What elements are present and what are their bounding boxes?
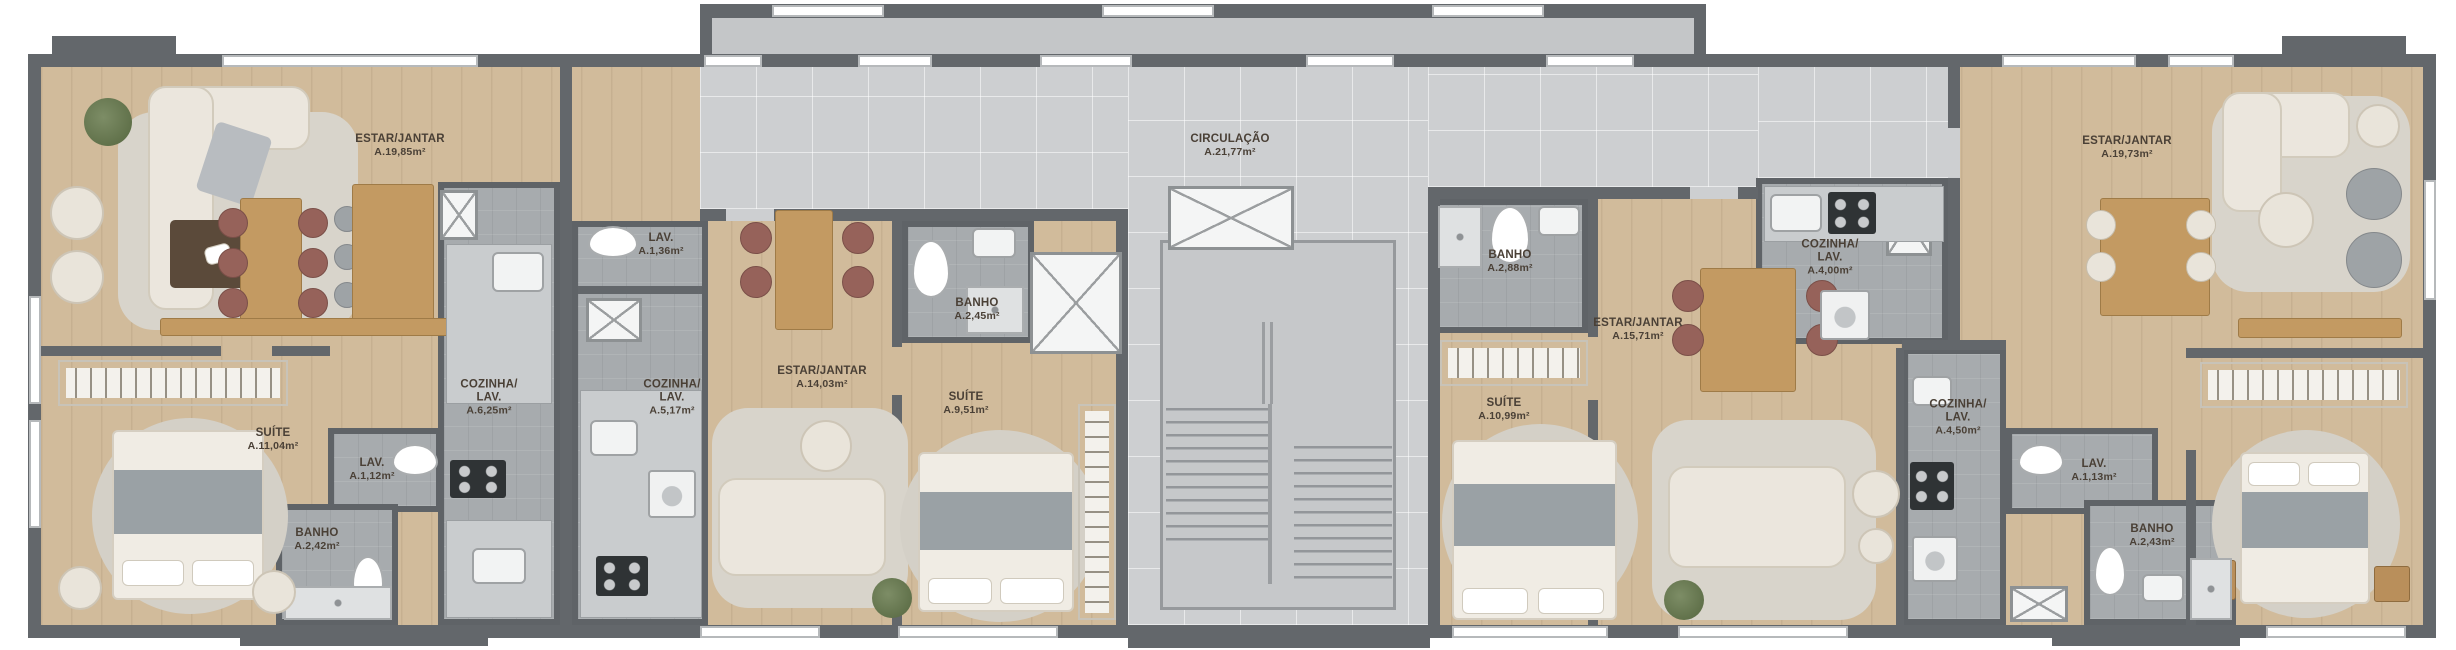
room-area: A.4,50m² (1926, 425, 1990, 438)
side-table (1858, 528, 1894, 564)
stove (596, 556, 648, 596)
room-area: A.2,88m² (1487, 262, 1532, 275)
door-opening (726, 209, 774, 221)
bathroom-sink (2142, 574, 2184, 602)
armchair (2346, 168, 2402, 220)
door-opening (1948, 128, 1960, 178)
room-label-circulacao: CIRCULAÇÃO A.21,77m² (1190, 133, 1269, 159)
window (29, 420, 41, 528)
room-area: A.2,42m² (294, 540, 339, 553)
coffee-table (800, 420, 852, 472)
room-area: A.10,99m² (1478, 410, 1529, 423)
room-label-apt2-suite: SUÍTE A.9,51m² (943, 391, 988, 417)
dining-chair (2086, 252, 2116, 282)
stove (1910, 462, 1954, 510)
corridor-wall (1738, 187, 1758, 199)
apt3-suite-wall (1588, 187, 1598, 337)
room-name: COZINHA/LAV. (1798, 239, 1862, 265)
washing-machine (648, 470, 696, 518)
room-label-apt2-banho: BANHO A.2,45m² (954, 297, 999, 323)
bed-pillow (2248, 462, 2300, 486)
stove (1828, 192, 1876, 234)
window (2424, 180, 2436, 300)
room-name: SUÍTE (1478, 397, 1529, 410)
circulation-floor-far-right (1758, 67, 1956, 178)
stair-treads (1294, 446, 1392, 580)
wall-stub (240, 632, 488, 646)
dining-chair (298, 248, 328, 278)
room-label-apt1-lav: LAV. A.1,12m² (349, 457, 394, 483)
duct-shaft (440, 190, 478, 240)
pouf (252, 570, 296, 614)
room-area: A.15,71m² (1593, 330, 1683, 343)
dining-chair (2186, 210, 2216, 240)
room-area: A.1,12m² (349, 470, 394, 483)
wall-stub (52, 36, 176, 56)
toilet (912, 240, 950, 298)
dining-chair (1672, 280, 1704, 312)
dining-chair (2186, 252, 2216, 282)
party-wall-apt1-apt2 (560, 67, 572, 625)
wardrobe (1440, 340, 1588, 386)
room-label-apt3-banho: BANHO A.2,88m² (1487, 249, 1532, 275)
window (1432, 5, 1544, 17)
interior-wall (1902, 340, 2006, 350)
room-label-apt4-cozinha-lav: COZINHA/LAV. A.4,50m² (1926, 399, 1990, 438)
window (1306, 55, 1394, 67)
window (1546, 55, 1634, 67)
bed-pillow (1462, 588, 1528, 614)
wardrobe (58, 360, 288, 406)
room-area: A.4,00m² (1798, 265, 1862, 278)
circulation-floor-left (700, 67, 1128, 209)
room-area: A.9,51m² (943, 404, 988, 417)
wall (1694, 4, 1706, 60)
window (1452, 626, 1608, 638)
kitchen-sink (1770, 194, 1822, 232)
room-name: CIRCULAÇÃO (1190, 133, 1269, 146)
room-name: SUÍTE (943, 391, 988, 404)
window (29, 296, 41, 404)
floor-plan: ESTAR/JANTAR A.19,85m² SUÍTE A.11,04m² L… (0, 0, 2456, 650)
window (704, 55, 762, 67)
door-opening (1690, 187, 1738, 199)
bed-blanket (2242, 492, 2368, 548)
washing-machine (1912, 536, 1958, 582)
elevator-shaft (1168, 186, 1294, 250)
toilet (2094, 546, 2126, 596)
interior-wall (892, 221, 902, 347)
room-area: A.14,03m² (777, 378, 867, 391)
room-name: ESTAR/JANTAR (777, 365, 867, 378)
shower (2190, 558, 2232, 620)
dining-chair (298, 288, 328, 318)
room-area: A.19,85m² (355, 146, 445, 159)
wall-stub (2282, 36, 2406, 56)
window (772, 5, 884, 17)
bathroom-sink (972, 228, 1016, 258)
room-name: BANHO (954, 297, 999, 310)
nightstand (2374, 566, 2410, 602)
coffee-table (2258, 192, 2314, 248)
dining-chair (218, 248, 248, 278)
room-area: A.1,13m² (2071, 471, 2116, 484)
room-name: BANHO (294, 527, 339, 540)
dining-chair (740, 222, 772, 254)
room-area: A.5,17m² (640, 405, 704, 418)
toilet (588, 226, 638, 258)
stove (450, 460, 506, 498)
sideboard (160, 318, 460, 336)
room-label-apt3-cozinha-lav: COZINHA/LAV. A.4,00m² (1798, 239, 1862, 278)
room-name: ESTAR/JANTAR (1593, 317, 1683, 330)
outer-wall-right (2423, 54, 2436, 638)
dining-chair (740, 266, 772, 298)
dining-chair (842, 222, 874, 254)
dining-chair (218, 288, 248, 318)
sofa (1668, 466, 1846, 568)
room-name: COZINHA/LAV. (457, 379, 521, 405)
room-label-apt2-lav: LAV. A.1,36m² (638, 232, 683, 258)
sofa (718, 478, 886, 576)
corridor-wall (1440, 187, 1690, 199)
wardrobe (1078, 404, 1116, 620)
toilet (392, 444, 438, 476)
stair-divider (1268, 404, 1272, 584)
room-name: SUÍTE (248, 427, 299, 440)
room-name: LAV. (2071, 458, 2116, 471)
room-label-apt4-banho: BANHO A.2,43m² (2129, 523, 2174, 549)
dining-chair (2086, 210, 2116, 240)
window (1040, 55, 1132, 67)
room-label-apt2-estar-jantar: ESTAR/JANTAR A.14,03m² (777, 365, 867, 391)
kitchen-island (352, 184, 434, 332)
washing-machine (1820, 290, 1870, 340)
room-label-apt4-lav: LAV. A.1,13m² (2071, 458, 2116, 484)
room-label-apt1-cozinha-lav: COZINHA/LAV. A.6,25m² (457, 379, 521, 418)
side-table (1852, 470, 1900, 518)
circulation-floor-right (1428, 67, 1758, 187)
wardrobe (2200, 362, 2408, 408)
stair-treads (1166, 408, 1268, 544)
window (2002, 55, 2136, 67)
corridor-wall (700, 209, 726, 221)
room-label-apt4-estar-jantar: ESTAR/JANTAR A.19,73m² (2082, 135, 2172, 161)
apt4-suite-wall (2186, 348, 2423, 358)
toilet (2018, 444, 2064, 476)
room-name: COZINHA/LAV. (640, 379, 704, 405)
room-label-apt3-estar-jantar: ESTAR/JANTAR A.15,71m² (1593, 317, 1683, 343)
plant (1664, 580, 1704, 620)
room-label-apt2-cozinha-lav: COZINHA/LAV. A.5,17m² (640, 379, 704, 418)
window (2168, 55, 2234, 67)
bed-blanket (114, 470, 262, 534)
bed-pillow (2308, 462, 2360, 486)
wall-stub (1128, 632, 1430, 648)
window (2266, 626, 2406, 638)
room-area: A.6,25m² (457, 405, 521, 418)
window (222, 55, 478, 67)
duct-shaft (2010, 586, 2068, 622)
armchair (50, 186, 104, 240)
room-label-apt1-banho: BANHO A.2,42m² (294, 527, 339, 553)
room-name: BANHO (1487, 249, 1532, 262)
shower (284, 586, 392, 620)
duct-shaft (586, 298, 642, 342)
bed-pillow (122, 560, 184, 586)
room-area: A.2,43m² (2129, 536, 2174, 549)
bed-blanket (920, 492, 1072, 550)
dining-chair (842, 266, 874, 298)
stair-rail (1262, 322, 1265, 404)
room-area: A.1,36m² (638, 245, 683, 258)
dining-table (240, 198, 302, 332)
room-name: BANHO (2129, 523, 2174, 536)
stair-rail (1270, 322, 1273, 404)
bathroom-sink (1538, 206, 1580, 236)
kitchen-sink (492, 252, 544, 292)
apt1-suite-wall (272, 346, 330, 356)
plant (84, 98, 132, 146)
dining-chair (218, 208, 248, 238)
dining-chair (298, 208, 328, 238)
pouf (58, 566, 102, 610)
room-name: ESTAR/JANTAR (355, 133, 445, 146)
kitchen-sink (590, 420, 638, 456)
dining-table (775, 210, 833, 330)
bed-pillow (928, 578, 992, 604)
wall-stub (2052, 632, 2240, 646)
bed-blanket (1454, 484, 1615, 546)
room-area: A.2,45m² (954, 310, 999, 323)
shower (1438, 206, 1482, 268)
room-label-apt1-suite: SUÍTE A.11,04m² (248, 427, 299, 453)
dining-table (1700, 268, 1796, 392)
bed-pillow (192, 560, 254, 586)
apt1-suite-wall (41, 346, 221, 356)
room-name: COZINHA/LAV. (1926, 399, 1990, 425)
wall (700, 4, 712, 60)
window (858, 55, 932, 67)
room-name: LAV. (638, 232, 683, 245)
armchair (2346, 232, 2402, 288)
room-area: A.11,04m² (248, 440, 299, 453)
armchair (50, 250, 104, 304)
bed-pillow (1538, 588, 1604, 614)
room-area: A.21,77m² (1190, 146, 1269, 159)
room-area: A.19,73m² (2082, 148, 2172, 161)
side-table (2356, 104, 2400, 148)
plant (872, 578, 912, 618)
bed-pillow (1000, 578, 1064, 604)
window (898, 626, 1058, 638)
room-label-apt3-suite: SUÍTE A.10,99m² (1478, 397, 1529, 423)
elevator-shaft (1030, 252, 1122, 354)
console-table (2238, 318, 2402, 338)
room-name: LAV. (349, 457, 394, 470)
window (1102, 5, 1214, 17)
kitchen-sink (472, 548, 526, 584)
apt2-lav-wall (578, 286, 702, 294)
party-wall-apt3-apt4 (1948, 67, 1960, 348)
window (1678, 626, 1848, 638)
room-name: ESTAR/JANTAR (2082, 135, 2172, 148)
room-label-apt1-estar-jantar: ESTAR/JANTAR A.19,85m² (355, 133, 445, 159)
window (700, 626, 820, 638)
